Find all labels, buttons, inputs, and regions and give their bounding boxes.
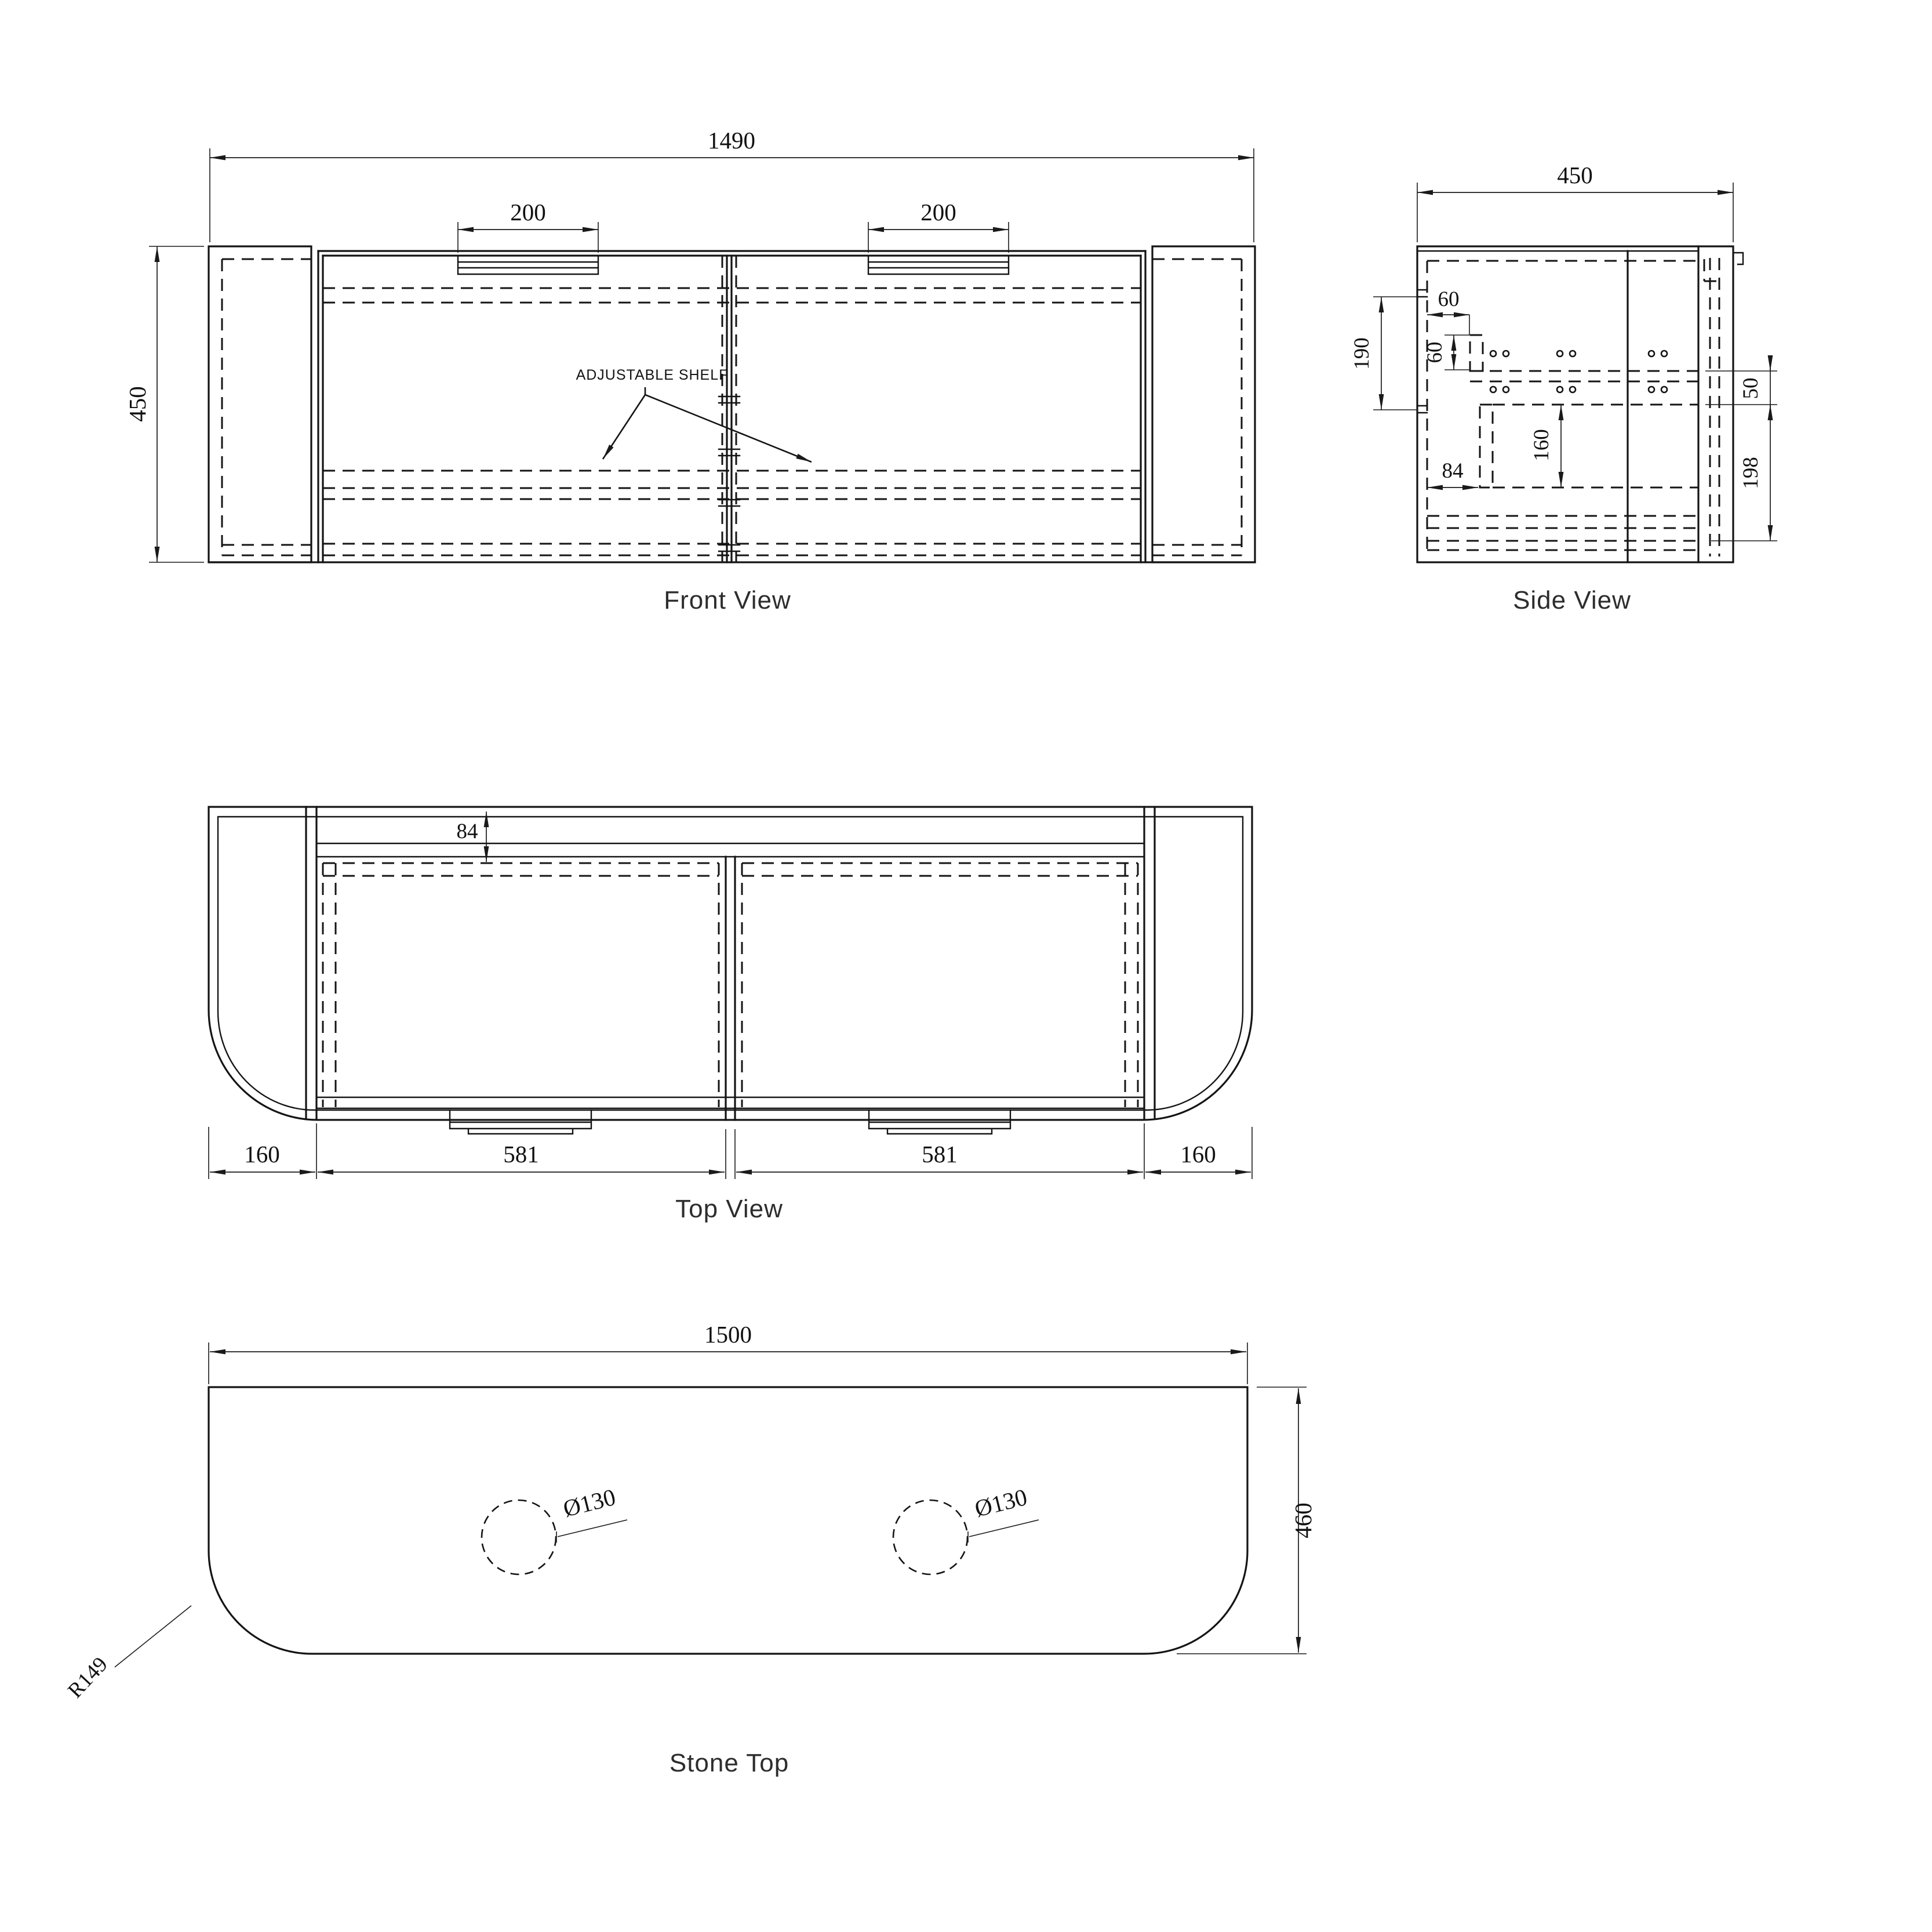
drawing-canvas: ADJUSTABLE SHELF 1490 200 200 450 Front …	[0, 0, 1932, 1932]
front-handle-left	[458, 256, 598, 274]
vanity-technical-drawing: ADJUSTABLE SHELF 1490 200 200 450 Front …	[0, 0, 1932, 1932]
top-handle-right	[869, 1110, 1010, 1134]
stone-dim-hole-left: Ø130	[561, 1483, 618, 1522]
stone-dim-depth: 460	[1290, 1502, 1316, 1538]
front-view: ADJUSTABLE SHELF 1490 200 200 450 Front …	[124, 127, 1255, 614]
stone-outline	[209, 1387, 1247, 1654]
side-dimensions: 450 190 60 60 160 84 50 198	[1350, 162, 1777, 541]
top-dim-door-left: 581	[503, 1141, 539, 1167]
top-dimensions: 84 160 581 581 160	[209, 812, 1252, 1179]
front-dimensions: 1490 200 200 450	[124, 127, 1254, 562]
front-dim-width: 1490	[708, 127, 755, 154]
side-dim-gap-bottom: 198	[1739, 457, 1763, 489]
adjustable-shelf-label: ADJUSTABLE SHELF	[576, 367, 729, 383]
side-dim-gap-small: 50	[1739, 378, 1763, 399]
side-dim-hinge-v: 60	[1423, 342, 1447, 363]
adjustable-shelf-callout: ADJUSTABLE SHELF	[576, 367, 812, 462]
side-dim-shelf-drop: 160	[1530, 429, 1553, 461]
stone-dim-corner-radius: R149	[63, 1653, 112, 1703]
top-view-outline	[209, 807, 1252, 1120]
tap-hole-right: Ø130	[893, 1483, 1039, 1574]
stone-dim-hole-right: Ø130	[972, 1483, 1030, 1522]
front-view-outline	[209, 246, 1255, 562]
front-handle-right	[868, 256, 1009, 274]
top-handle-left	[450, 1110, 591, 1134]
stone-top-view: Ø130 Ø130 1500 460 R149 Stone Top	[63, 1321, 1316, 1777]
tap-hole-left: Ø130	[482, 1483, 627, 1574]
top-dim-back-inset: 84	[457, 820, 478, 843]
front-dim-handle-right: 200	[920, 199, 956, 225]
side-view: 450 190 60 60 160 84 50 198 Side View	[1350, 162, 1777, 614]
wall-hanger-hook	[1733, 253, 1743, 264]
top-view: 84 160 581 581 160 Top View	[209, 807, 1252, 1223]
side-dim-depth: 450	[1557, 162, 1593, 188]
stone-dim-width: 1500	[704, 1321, 752, 1348]
side-dim-rail-spacing: 190	[1350, 337, 1374, 370]
front-dim-handle-left: 200	[510, 199, 546, 225]
side-hidden-lines	[1427, 258, 1719, 556]
stone-dimensions: 1500 460 R149	[63, 1321, 1316, 1702]
top-dim-end-left: 160	[244, 1141, 280, 1167]
side-view-caption: Side View	[1513, 586, 1631, 614]
front-view-caption: Front View	[664, 586, 791, 614]
stone-top-caption: Stone Top	[670, 1749, 789, 1777]
top-dim-door-right: 581	[922, 1141, 958, 1167]
front-dim-height: 450	[124, 386, 151, 422]
side-dim-bracket-offset: 84	[1442, 459, 1464, 483]
top-dim-end-right: 160	[1180, 1141, 1216, 1167]
side-dim-hinge-h: 60	[1438, 288, 1460, 311]
top-view-caption: Top View	[675, 1195, 783, 1223]
top-hidden-lines	[323, 863, 1138, 1107]
